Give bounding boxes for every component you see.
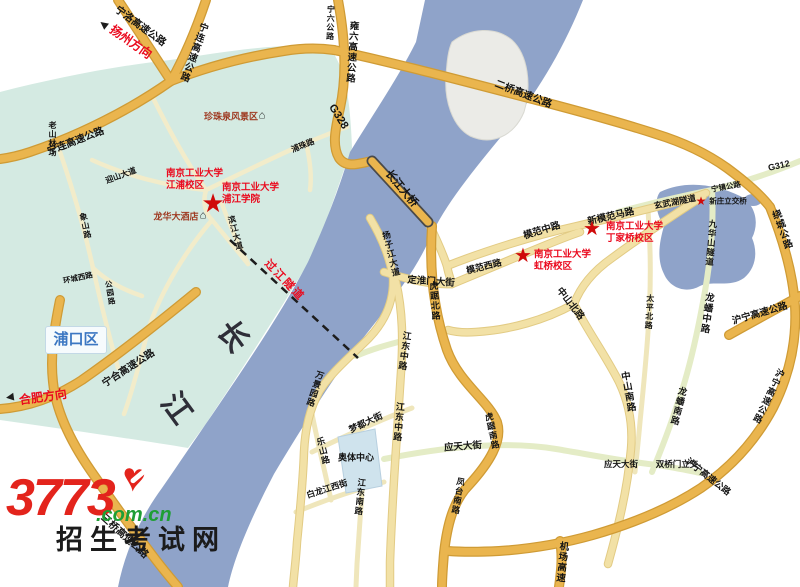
scenic-spot-icon: ⌂ [259, 111, 266, 122]
lbl-longpannan-road: 龙蟠南路 [669, 386, 687, 427]
nanjing-campus-map: 宁洛高速公路扬州方向宁连高速公路宁六公路雍六高速公路G328二桥高速公路宁连高速… [0, 0, 800, 587]
lbl-g312: G312 [767, 159, 790, 173]
lbl-njtech-jiangpu-campus-line: 南京工业大学 [166, 168, 223, 180]
lbl-zhongshanbei-road: 中山北路 [555, 286, 586, 322]
lbl-njtech-dingjiaqiao-campus-line: 丁家桥校区 [606, 233, 663, 245]
lbl-njtech-hongqiao-campus: 南京工业大学虹桥校区 [534, 249, 591, 274]
lbl-hujubei-road: 虎踞北路 [428, 281, 440, 322]
lbl-ninglian-expwy-n: 宁连高速公路 [178, 21, 208, 83]
lbl-yangzijiang-avenue: 扬子江大道 [381, 230, 401, 278]
hotel-icon: ⌂ [200, 211, 207, 222]
lbl-xiangshan-road: 象山路 [78, 212, 91, 240]
lbl-puzhu-road: 浦珠路 [290, 138, 315, 154]
lbl-zhongshannan-road: 中山南路 [619, 370, 636, 413]
lbl-longhua-hotel: 龙华大酒店 [153, 213, 198, 222]
lbl-huning-expwy-s: 沪宁高速公路 [751, 367, 785, 425]
lbl-ningzhen-road: 宁镇公路 [711, 181, 742, 194]
lbl-g328: G328 [326, 103, 350, 132]
lbl-huning-expwy-e: 沪宁高速公路 [731, 302, 788, 327]
lbl-xinzhuang-interchange: 新庄立交桥 [709, 197, 747, 205]
lbl-ningliu-road: 宁六公路 [325, 5, 334, 41]
lbl-jiangdongzhong-road-n: 江东中路 [397, 331, 411, 372]
lbl-mengdu-street: 梦都大街 [348, 411, 384, 434]
lbl-mofan-west-road: 模范西路 [465, 258, 502, 275]
lbl-yongliu-expwy: 雍六高速公路 [344, 20, 358, 84]
lbl-jiangdongnan-road: 江东南路 [354, 478, 366, 517]
lbl-taipingbei-road: 太平北路 [644, 294, 654, 330]
site-watermark: 3773 ♥ .com.cn 招生考试网 [0, 458, 270, 587]
pukou-district-box: 浦口区 [45, 326, 107, 354]
lbl-wanjingyuan-road: 万景园路 [305, 370, 325, 409]
star-xinzhuang-interchange: ★ [696, 195, 707, 207]
lbl-leshan-road: 乐山路 [315, 436, 330, 466]
watermark-site-name: 招生考试网 [56, 518, 226, 557]
lbl-binjiang-avenue: 滨江大道 [226, 215, 243, 252]
lbl-huanchengxi-road: 环城西路 [63, 271, 94, 285]
lbl-njtech-dingjiaqiao-campus-line: 南京工业大学 [606, 221, 663, 233]
lbl-jiangdongzhong-road-s: 江东中路 [392, 402, 404, 443]
lbl-yangtze-char-jiang: 江 [155, 388, 197, 430]
hefei-arrow-icon: ► [3, 391, 18, 406]
lbl-yingtian-street-e: 应天大街 [604, 460, 638, 469]
lbl-yangtze-char-chang: 长 [211, 316, 253, 358]
lbl-bailongjiangxi-street: 白龙江西街 [305, 478, 348, 499]
lbl-njtech-hongqiao-campus-line: 虹桥校区 [534, 261, 591, 273]
lbl-aoti-center: 奥体中心 [338, 454, 374, 463]
lbl-raocheng-road: 绕城公路 [769, 209, 792, 252]
lbl-njtech-pujiang-college-line: 浦江学院 [222, 194, 279, 206]
lbl-yingtian-street-w: 应天大街 [444, 441, 483, 453]
lbl-fengtainan-road: 凤台南路 [451, 477, 466, 516]
lbl-njtech-pujiang-college-line: 南京工业大学 [222, 182, 279, 194]
lbl-jiuhuashan-tunnel: 九华山隧道 [705, 219, 718, 267]
lbl-gongyuan-road: 公园路 [104, 280, 116, 306]
lbl-njtech-hongqiao-campus-line: 南京工业大学 [534, 249, 591, 261]
lbl-njtech-dingjiaqiao-campus: 南京工业大学丁家桥校区 [606, 221, 663, 246]
lbl-guojiang-tunnel: 过江隧道 [262, 258, 306, 303]
lbl-ninghe-expwy: 宁合高速公路 [101, 348, 157, 389]
star-dingjiaqiao-campus: ★ [583, 219, 601, 239]
lbl-jichang-expwy: 机场高速 [554, 541, 568, 584]
lbl-longpanzhong-road: 龙蟠中路 [698, 292, 713, 335]
lbl-huning-expwy-sw: 沪宁高速公路 [684, 457, 732, 497]
lbl-mofan-mid-road: 模范中路 [522, 221, 561, 241]
lbl-changjiang-bridge: 长江大桥 [383, 169, 420, 210]
lbl-laoshan-forest: 老山林场 [48, 121, 56, 157]
lbl-xuanwu-lake-tunnel: 玄武湖隧道 [653, 194, 696, 210]
lbl-erqiao-expwy: 二桥高速公路 [493, 80, 553, 111]
star-hongqiao-campus: ★ [514, 246, 532, 266]
lbl-hefei-direction: 合肥方向 [18, 388, 67, 407]
lbl-njtech-pujiang-college: 南京工业大学浦江学院 [222, 182, 279, 207]
lbl-hujunan-road: 虎踞南路 [484, 412, 500, 451]
lbl-yingshan-avenue: 迎山大道 [105, 167, 138, 185]
lbl-zhenzhuquan-scenic: 珍珠泉风景区 [204, 113, 258, 122]
